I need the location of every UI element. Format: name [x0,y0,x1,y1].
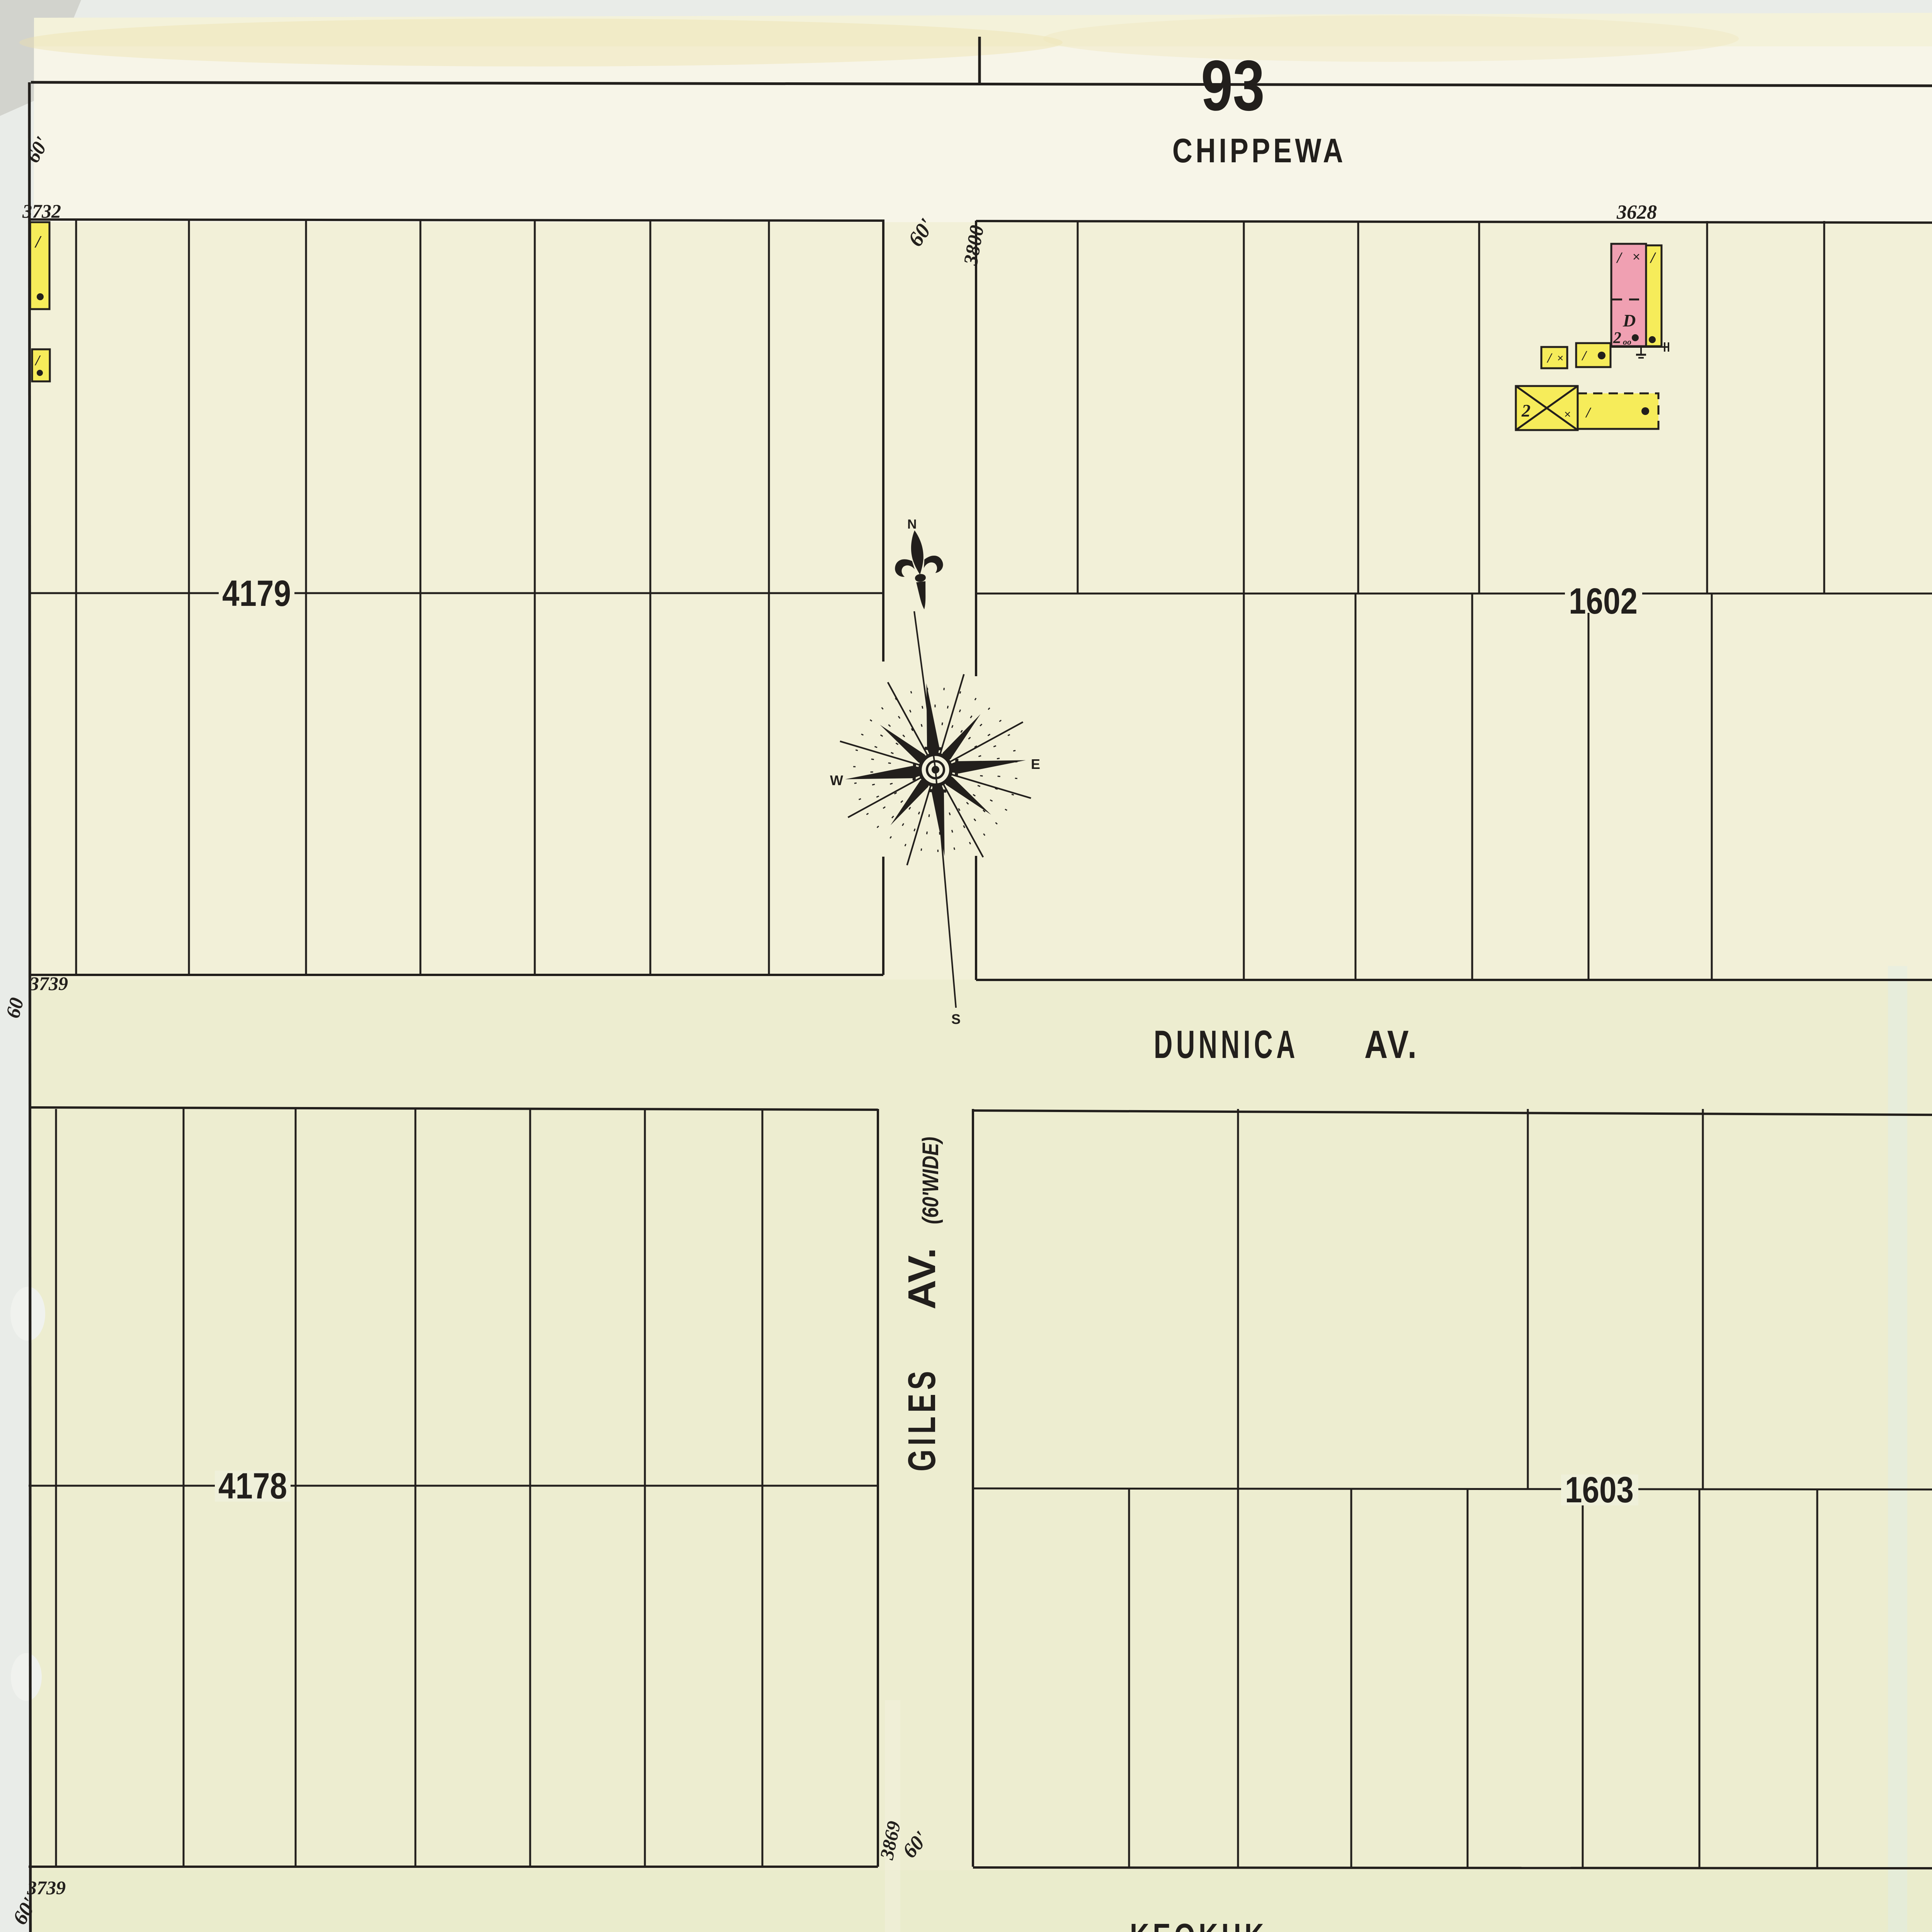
svg-text:×: × [1557,352,1563,364]
svg-text:N: N [907,517,917,532]
svg-text:3739: 3739 [27,1877,66,1898]
svg-text:DUNNICA: DUNNICA [1154,1022,1299,1066]
svg-text:E: E [1031,756,1040,772]
svg-text:3739: 3739 [29,973,68,994]
svg-text:CHIPPEWA: CHIPPEWA [1172,131,1346,170]
svg-text:93: 93 [1201,46,1265,126]
svg-text:3732: 3732 [22,200,61,222]
svg-text:2: 2 [1521,401,1531,420]
svg-text:W: W [830,772,843,788]
svg-text:S: S [951,1011,961,1027]
svg-text:1602: 1602 [1569,581,1638,622]
svg-text:3628: 3628 [1616,201,1657,223]
svg-text:GILES: GILES [900,1367,944,1471]
svg-text:4178: 4178 [218,1466,287,1507]
svg-text:oo: oo [1623,337,1631,347]
svg-text:×: × [1633,250,1640,264]
svg-text:1603: 1603 [1565,1469,1634,1510]
svg-text:AV.: AV. [1364,1022,1418,1066]
svg-text:×: × [1564,408,1571,421]
svg-text:2: 2 [1613,329,1621,347]
svg-text:4179: 4179 [222,573,291,614]
svg-text:D: D [1622,311,1636,330]
svg-text:(60'WIDE): (60'WIDE) [918,1137,943,1224]
svg-text:KEOKUK: KEOKUK [1130,1917,1267,1932]
svg-text:AV.: AV. [900,1248,944,1310]
